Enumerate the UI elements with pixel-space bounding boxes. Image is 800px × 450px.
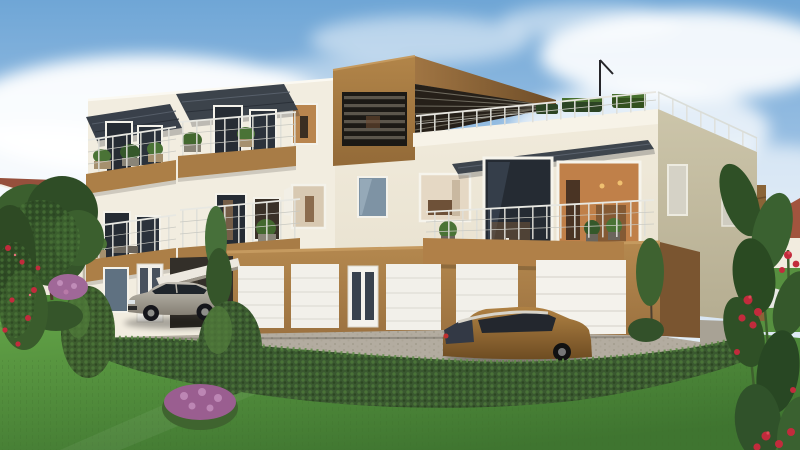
purple-shrub-foreground: [162, 384, 238, 430]
architectural-rendering: [0, 0, 800, 450]
headlight: [128, 300, 135, 304]
taillight: [444, 334, 449, 339]
rendering-canvas: [0, 0, 800, 450]
side-window: [668, 165, 687, 215]
garage-side-return: [660, 242, 700, 338]
entrance-door-glazed: [348, 266, 378, 327]
round-shrub-center: [198, 301, 262, 395]
garage-door-3: [386, 264, 441, 330]
garage-door-2: [291, 264, 339, 328]
